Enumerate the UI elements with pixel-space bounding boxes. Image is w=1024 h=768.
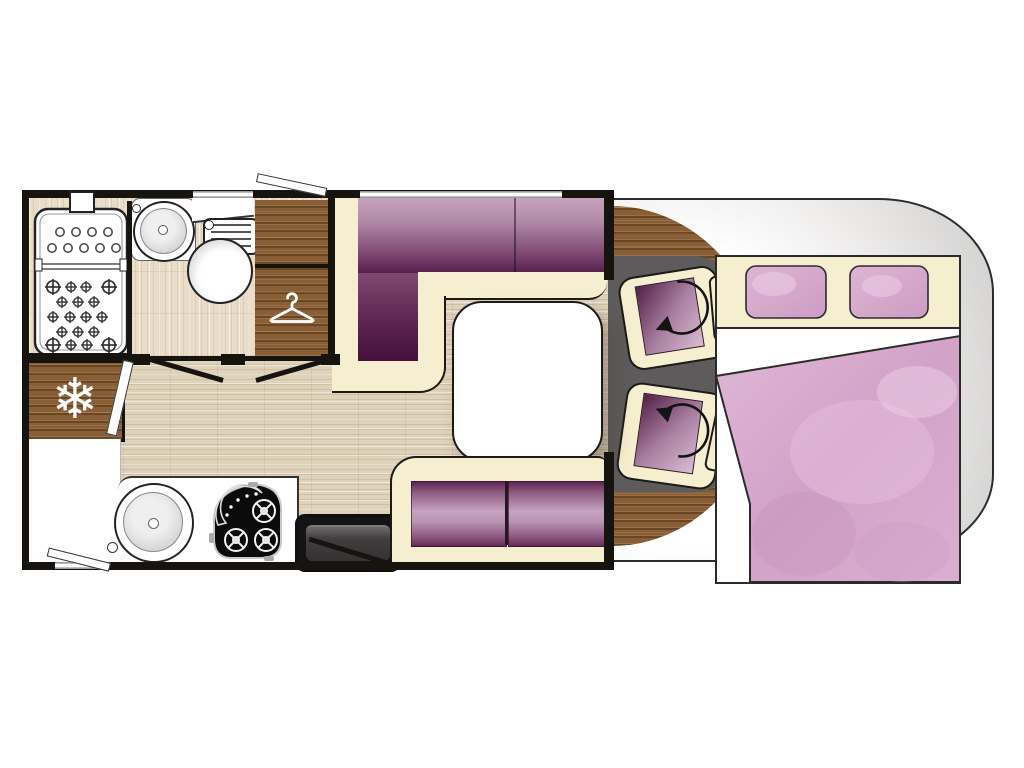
bench-cushion-right [508, 481, 605, 547]
dinette-table [452, 301, 603, 462]
tap [132, 204, 141, 213]
wall-right-upper [604, 190, 614, 280]
dinette-armrest [332, 197, 360, 362]
swivel-arrow-icon [646, 392, 719, 466]
dinette-seat-wrap [332, 361, 446, 393]
door-hinge [221, 354, 245, 365]
pillow [746, 266, 826, 318]
toilet-bowl [187, 238, 253, 304]
overhead-cabinet [255, 200, 328, 264]
wall-right-lower [604, 452, 614, 570]
dinette-backrest [358, 197, 605, 273]
swivel-arrow-icon [645, 271, 719, 346]
pillow [850, 266, 928, 318]
wall-shower-partition [127, 201, 132, 357]
wall-bathroom [22, 353, 132, 363]
cushion-split [514, 197, 516, 273]
hob [204, 477, 288, 563]
bench-cushion-split [505, 481, 508, 545]
double-bed [712, 252, 964, 588]
drain [148, 518, 159, 529]
hanger-icon [266, 290, 318, 332]
shower-tray [33, 207, 129, 357]
wall-wardrobe-divider [328, 195, 335, 362]
swivel-seat-rear [615, 381, 728, 492]
knob [107, 542, 118, 553]
bench-cushion-left [411, 481, 507, 547]
wardrobe [255, 268, 328, 358]
window-dinette [360, 191, 562, 199]
drain [158, 225, 168, 235]
flush-button [204, 220, 214, 230]
dinette-seat-trim [418, 272, 607, 300]
window-bathroom [193, 191, 253, 199]
dinette-side-backrest [358, 273, 420, 363]
floorplan-canvas: ❄ [0, 0, 1024, 768]
dinette-seat-trim-side [418, 296, 446, 363]
shower-vent [69, 191, 95, 213]
wall-left [22, 190, 29, 570]
duvet [716, 336, 960, 582]
